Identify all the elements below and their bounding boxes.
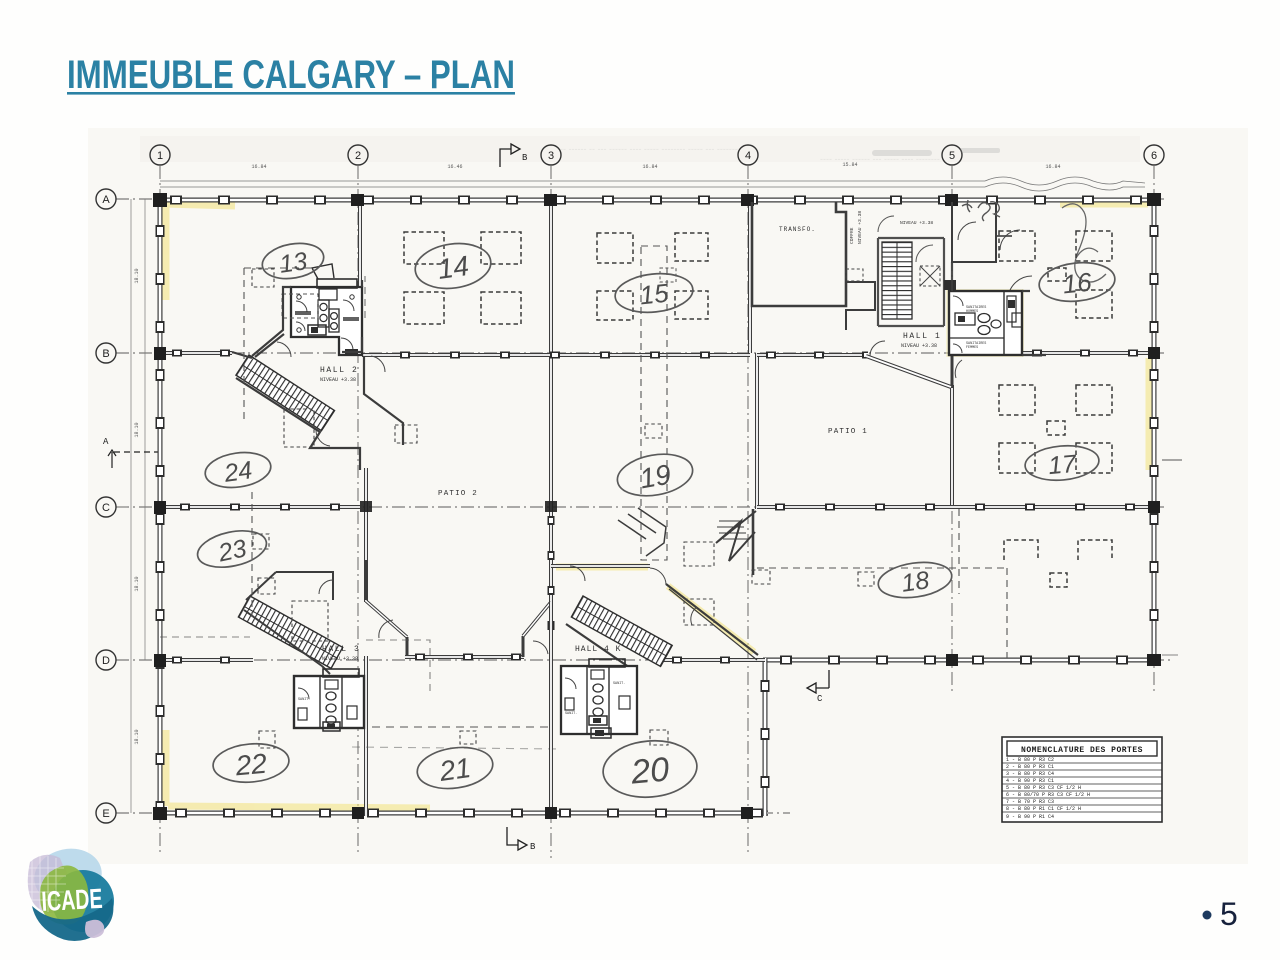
svg-text:SANIT.: SANIT.: [613, 682, 625, 686]
svg-text:19: 19: [637, 459, 673, 495]
svg-text:23: 23: [215, 534, 249, 567]
svg-text:PATIO 1: PATIO 1: [828, 428, 868, 436]
svg-text:8 - B 80 P R1 C1 CF 1/2 H: 8 - B 80 P R1 C1 CF 1/2 H: [1006, 806, 1081, 812]
svg-text:17: 17: [1047, 450, 1078, 480]
svg-text:16.84: 16.84: [251, 164, 266, 170]
svg-text:16.84: 16.84: [642, 164, 657, 170]
svg-text:SANIT.: SANIT.: [298, 698, 310, 702]
svg-text:C: C: [102, 502, 110, 514]
svg-text:7 - B 70 P R3 C3: 7 - B 70 P R3 C3: [1006, 799, 1054, 805]
svg-text:NIVEAU +3.38: NIVEAU +3.38: [900, 220, 933, 226]
svg-text:16.46: 16.46: [447, 164, 462, 170]
svg-text:PATIO 2: PATIO 2: [438, 490, 478, 498]
svg-text:E: E: [102, 808, 109, 820]
svg-text:ICADE: ICADE: [41, 883, 104, 917]
svg-text:SANIT.: SANIT.: [565, 712, 577, 716]
svg-text:18: 18: [900, 566, 932, 598]
svg-text:NIVEAU +3.38: NIVEAU +3.38: [901, 343, 937, 349]
svg-text:16: 16: [1061, 267, 1093, 300]
svg-text:D: D: [102, 655, 110, 667]
svg-text:3: 3: [548, 150, 554, 162]
svg-text:5: 5: [1220, 896, 1238, 932]
svg-text:NIVEAU +3.38: NIVEAU +3.38: [857, 211, 863, 244]
svg-text:-- ------ -- --- ------ ---- -: -- ------ -- --- ------ ---- ----- -----…: [560, 144, 738, 154]
svg-text:2: 2: [355, 150, 361, 162]
svg-text:COFFRE: COFFRE: [849, 227, 855, 244]
svg-text:IMMEUBLE CALGARY – PLAN: IMMEUBLE CALGARY – PLAN: [67, 53, 515, 97]
svg-text:4: 4: [745, 150, 751, 162]
svg-text:4 - B 90 P R3 C1: 4 - B 90 P R3 C1: [1006, 778, 1054, 784]
svg-text:18.10: 18.10: [134, 268, 140, 283]
svg-text:16.84: 16.84: [1045, 164, 1060, 170]
svg-text:FEMMES: FEMMES: [966, 346, 978, 350]
svg-text:18.10: 18.10: [134, 576, 140, 591]
svg-text:1: 1: [157, 150, 163, 162]
svg-text:18.10: 18.10: [134, 729, 140, 744]
svg-text:B: B: [102, 348, 109, 360]
svg-text:A: A: [102, 194, 110, 206]
svg-text:HALL 1: HALL 1: [903, 332, 941, 341]
svg-text:3 - B 80 P R3 C4: 3 - B 80 P R3 C4: [1006, 771, 1054, 777]
svg-text:6: 6: [1151, 150, 1157, 162]
svg-text:NIVEAU +3.38: NIVEAU +3.38: [322, 656, 358, 662]
svg-text:20: 20: [629, 750, 671, 791]
svg-text:NIVEAU +3.38: NIVEAU +3.38: [320, 377, 356, 383]
svg-text:22: 22: [233, 748, 268, 782]
svg-text:HALL 2: HALL 2: [320, 366, 358, 375]
svg-text:NOMENCLATURE DES PORTES: NOMENCLATURE DES PORTES: [1021, 746, 1143, 755]
svg-text:15: 15: [638, 278, 670, 311]
svg-text:HALL 3: HALL 3: [322, 645, 360, 654]
svg-text:B: B: [522, 153, 528, 163]
svg-text:C: C: [817, 694, 823, 704]
svg-text:1 - B 80 P R3 C2: 1 - B 80 P R3 C2: [1006, 757, 1054, 763]
svg-text:13: 13: [278, 247, 310, 279]
svg-text:HOMMES: HOMMES: [966, 310, 978, 314]
svg-text:6 - B 80/70 P R3 C3 CF 1/2 H: 6 - B 80/70 P R3 C3 CF 1/2 H: [1006, 792, 1090, 798]
svg-text:18.10: 18.10: [134, 422, 140, 437]
svg-text:2 - B 80 P R3 C1: 2 - B 80 P R3 C1: [1006, 764, 1054, 770]
svg-text:HALL 4 K: HALL 4 K: [575, 645, 621, 654]
svg-text:5 - B 80 P R3 C3 CF 1/2 H: 5 - B 80 P R3 C3 CF 1/2 H: [1006, 785, 1081, 791]
svg-text:24: 24: [222, 456, 254, 488]
svg-text:9 - B 90 P R1 C4: 9 - B 90 P R1 C4: [1006, 814, 1054, 820]
svg-text:21: 21: [437, 752, 473, 787]
svg-text:14: 14: [436, 250, 471, 285]
svg-text:5: 5: [949, 150, 955, 162]
svg-text:B: B: [530, 842, 536, 852]
svg-text:A: A: [103, 437, 109, 447]
svg-text:TRANSFO.: TRANSFO.: [779, 226, 816, 233]
